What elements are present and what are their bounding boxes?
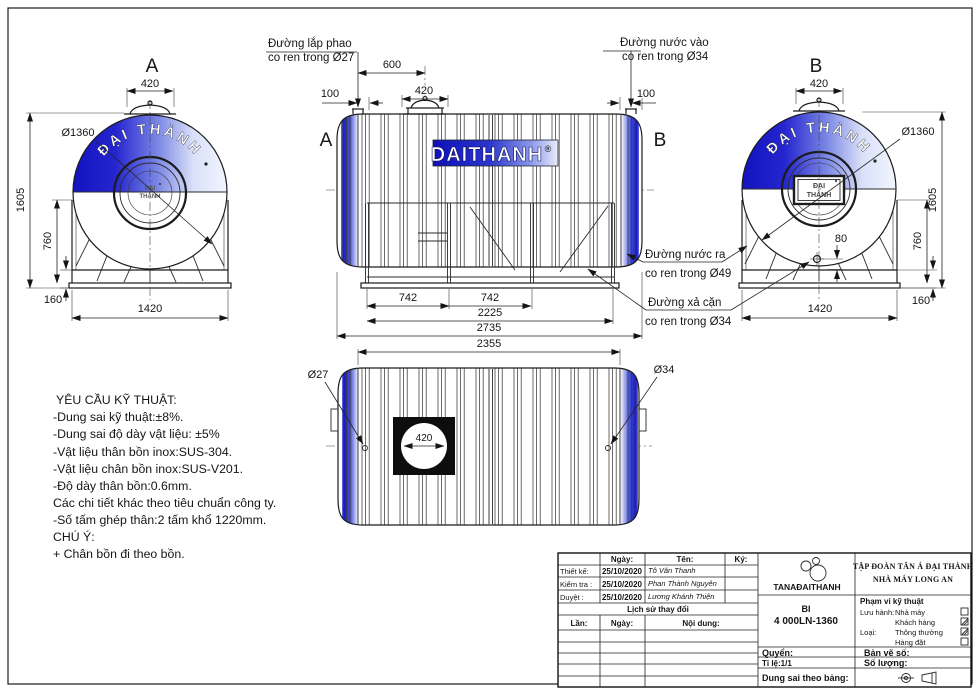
dim-2355: 2355 — [477, 338, 501, 350]
callout-outlet-line2: co ren trong Ø49 — [645, 268, 731, 280]
brand-banner-text: DAITHANH — [431, 144, 543, 166]
dim-100-right: 100 — [637, 88, 655, 100]
callout-float-line2: co ren trong Ø27 — [268, 52, 354, 64]
tb-row3-date: 25/10/2020 — [602, 593, 643, 602]
elevation-letter-b: B — [654, 130, 667, 151]
field-quantity: Số lượng: — [864, 658, 907, 668]
field-book: Quyển: — [762, 648, 793, 658]
dia-27-label: Ø27 — [308, 369, 329, 381]
tech-item: -Số tấm ghép thân:2 tấm khổ 1220mm. — [53, 513, 266, 527]
tb-col-date: Ngày: — [611, 555, 633, 564]
dim-b-160: 160 — [912, 295, 930, 307]
tech-item: -Vật liệu thân bồn inox:SUS-304. — [53, 445, 232, 459]
scope-type-label: Loại: — [860, 628, 876, 637]
tb-col-sign: Ký: — [735, 555, 748, 564]
tech-attention-title: CHÚ Ý: — [53, 529, 95, 544]
dim-742-1: 742 — [399, 292, 417, 304]
view-a-letter: A — [146, 56, 159, 77]
dia-label-a: Ø1360 — [61, 127, 94, 139]
scope-release-label: Lưu hành: — [860, 608, 894, 617]
tech-item: Các chi tiết khác theo tiêu chuẩn công t… — [53, 496, 276, 510]
field-drawing-no: Bản vẽ số: — [864, 648, 910, 658]
model-series: BI — [802, 604, 811, 614]
callout-drain-line1: Đường xả cặn — [648, 297, 721, 309]
field-tolerance: Dung sai theo bảng: — [762, 673, 849, 683]
brand-reg-dot-b — [873, 159, 876, 162]
brand-reg-mark: ® — [545, 144, 552, 154]
dia-label-b: Ø1360 — [901, 126, 934, 138]
technical-drawing-canvas: A ĐẠI THÀNH ĐẠI THÀNH — [0, 0, 980, 692]
scope-opt4: Hàng đặt — [895, 638, 926, 647]
dim-a-420: 420 — [141, 78, 159, 90]
callout-inlet-line2: co ren trong Ø34 — [622, 51, 709, 63]
elevation-letter-a: A — [320, 130, 333, 151]
tech-item: -Dung sai kỹ thuật:±8%. — [53, 410, 183, 424]
view-b-letter: B — [810, 56, 823, 77]
dim-b-1420: 1420 — [808, 303, 832, 315]
callout-outlet-line1: Đường nước ra — [645, 249, 726, 261]
brand-reg-dot-a — [204, 162, 207, 165]
tb-history-col-no: Lần: — [571, 619, 588, 628]
tb-row3-label: Duyệt : — [560, 593, 584, 602]
tb-row1-date: 25/10/2020 — [602, 567, 643, 576]
tb-history-col-content: Nội dung: — [682, 619, 719, 628]
dim-a-1420: 1420 — [138, 303, 162, 315]
tb-history-title: Lịch sử thay đổi — [627, 605, 689, 614]
body-ribs — [342, 114, 638, 267]
company-name-line1: TẬP ĐOÀN TÂN Á ĐẠI THÀNH — [853, 561, 974, 571]
brand-decal: DAITHANH ® — [431, 140, 558, 166]
callout-drain-line2: co ren trong Ø34 — [645, 316, 732, 328]
dim-420-manhole: 420 — [415, 85, 433, 97]
tb-row1-name: Tô Văn Thanh — [648, 566, 696, 575]
tb-row2-label: Kiểm tra : — [560, 580, 592, 589]
plan-shell — [338, 368, 639, 525]
title-block: Ngày: Tên: Ký: Thiết kế: 25/10/2020 Tô V… — [558, 553, 974, 687]
dia-34-label: Ø34 — [654, 364, 675, 376]
tb-col-name: Tên: — [677, 555, 694, 564]
tech-attention-item: + Chân bồn đi theo bồn. — [53, 547, 185, 561]
tech-title: YÊU CẦU KỸ THUẬT: — [56, 392, 177, 407]
tech-item: -Dung sai độ dày vật liệu: ±5% — [53, 427, 220, 441]
tb-history-col-date: Ngày: — [611, 619, 633, 628]
dim-742-2: 742 — [481, 292, 499, 304]
dim-2225: 2225 — [478, 307, 502, 319]
dim-a-1605: 1605 — [15, 188, 27, 212]
dim-600: 600 — [383, 59, 401, 71]
dim-100-left: 100 — [321, 88, 339, 100]
company-name-line2: NHÀ MÁY LONG AN — [873, 574, 953, 584]
dim-b-760: 760 — [912, 232, 924, 250]
company-logo-text: TANAĐAITHANH — [773, 582, 840, 592]
dim-b-420: 420 — [810, 78, 828, 90]
callout-inlet-line1: Đường nước vào — [620, 37, 709, 49]
dim-a-760: 760 — [42, 232, 54, 250]
scope-opt2: Khách hàng — [895, 618, 935, 627]
dim-b-80: 80 — [835, 233, 847, 245]
dim-2735: 2735 — [477, 322, 501, 334]
tech-item: -Độ dày thân bồn:0.6mm. — [53, 479, 192, 493]
elevation-shell — [337, 114, 642, 267]
field-scale: Tỉ lệ:1/1 — [762, 659, 792, 668]
scope-opt3: Thông thường — [895, 628, 943, 637]
tb-row3-name: Lương Khánh Thiện — [648, 592, 714, 601]
tb-row1-label: Thiết kế: — [560, 567, 589, 576]
dim-a-160: 160 — [44, 294, 62, 306]
tb-row2-name: Phan Thành Nguyên — [648, 579, 717, 588]
tb-row2-date: 25/10/2020 — [602, 580, 643, 589]
scope-opt1: Nhà máy — [895, 608, 925, 617]
model-code: 4 000LN-1360 — [774, 616, 838, 627]
scope-title: Phạm vi kỹ thuật — [860, 597, 924, 606]
dim-plan-420: 420 — [416, 433, 433, 444]
callout-float-line1: Đường lắp phao — [268, 37, 352, 50]
tech-item: -Vật liệu chân bồn inox:SUS-V201. — [53, 462, 243, 476]
